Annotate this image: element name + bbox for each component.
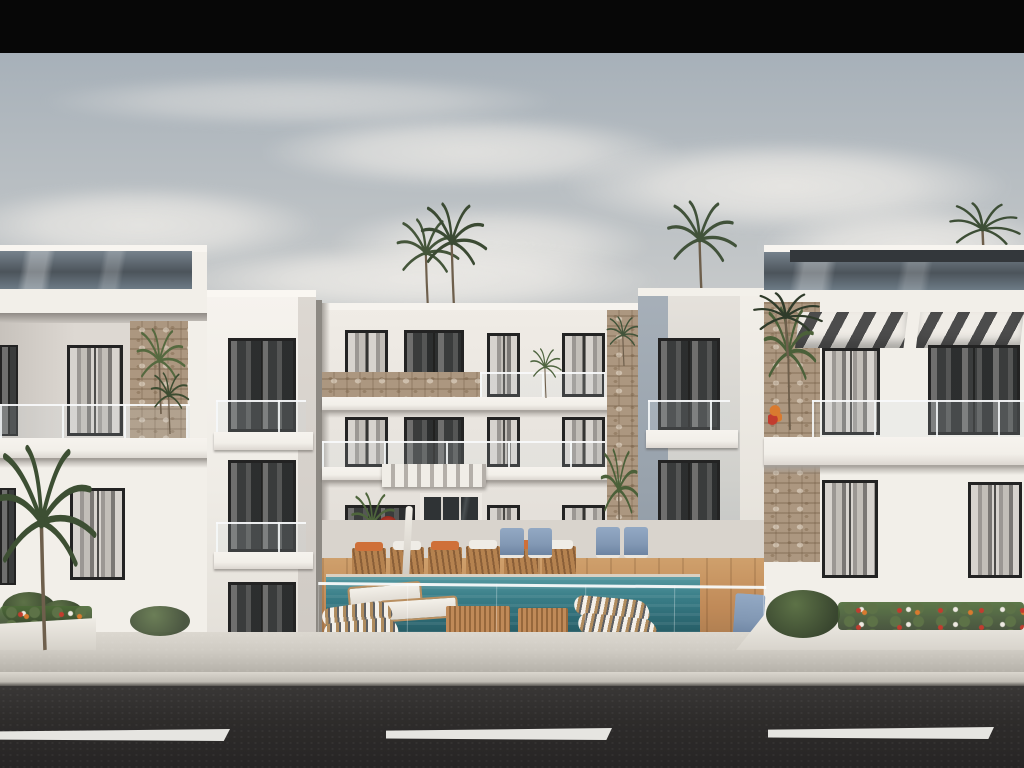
balcony-slab (214, 432, 313, 450)
foreground-palm-tree (0, 444, 104, 650)
tower-column-left (207, 290, 322, 648)
awning-palm-fronds (748, 292, 828, 358)
letterbox-bar (0, 0, 1024, 53)
window (822, 480, 878, 578)
cushioned-chair (500, 528, 524, 558)
curb-face (0, 672, 1024, 686)
sun-lounger (352, 548, 386, 576)
balcony-glass-railing (216, 400, 306, 432)
balcony-palm-plant (148, 372, 192, 434)
tower-top-edge (638, 288, 764, 296)
sun-lounger (428, 547, 462, 576)
palm-tree (416, 202, 492, 308)
sun-lounger (466, 546, 500, 576)
striped-awning (916, 312, 1024, 348)
cushioned-chair (596, 527, 620, 558)
tower-side (298, 290, 316, 648)
center-parapet (322, 303, 638, 310)
architectural-rendering (0, 0, 1024, 768)
balcony-slab (764, 437, 1024, 465)
stone-balcony-parapet (322, 372, 480, 398)
balcony-glass-railing (648, 400, 730, 430)
left-wing-roof-glass-railing (0, 251, 192, 289)
flower-planter (838, 602, 1024, 630)
slab-shadow (764, 465, 1024, 475)
flower-accent (768, 404, 782, 426)
window (968, 482, 1022, 578)
balcony-glass-railing (216, 522, 306, 552)
balcony-glass-railing (812, 400, 1024, 437)
cushioned-chair (624, 527, 648, 558)
balcony-slab (646, 430, 738, 448)
tower-top-edge (207, 290, 316, 297)
roof-pergola-beam (790, 250, 1024, 262)
balcony-slab (214, 552, 313, 569)
shrub (130, 606, 190, 636)
balcony-slab (322, 397, 638, 410)
entrance-pergola (382, 464, 486, 487)
large-bush (766, 590, 840, 638)
balcony-palm-plant (528, 348, 564, 398)
asphalt-road (0, 686, 1024, 768)
left-wing-fascia (0, 289, 207, 313)
cushioned-chair (528, 528, 552, 558)
glass-balustrade (318, 582, 766, 638)
